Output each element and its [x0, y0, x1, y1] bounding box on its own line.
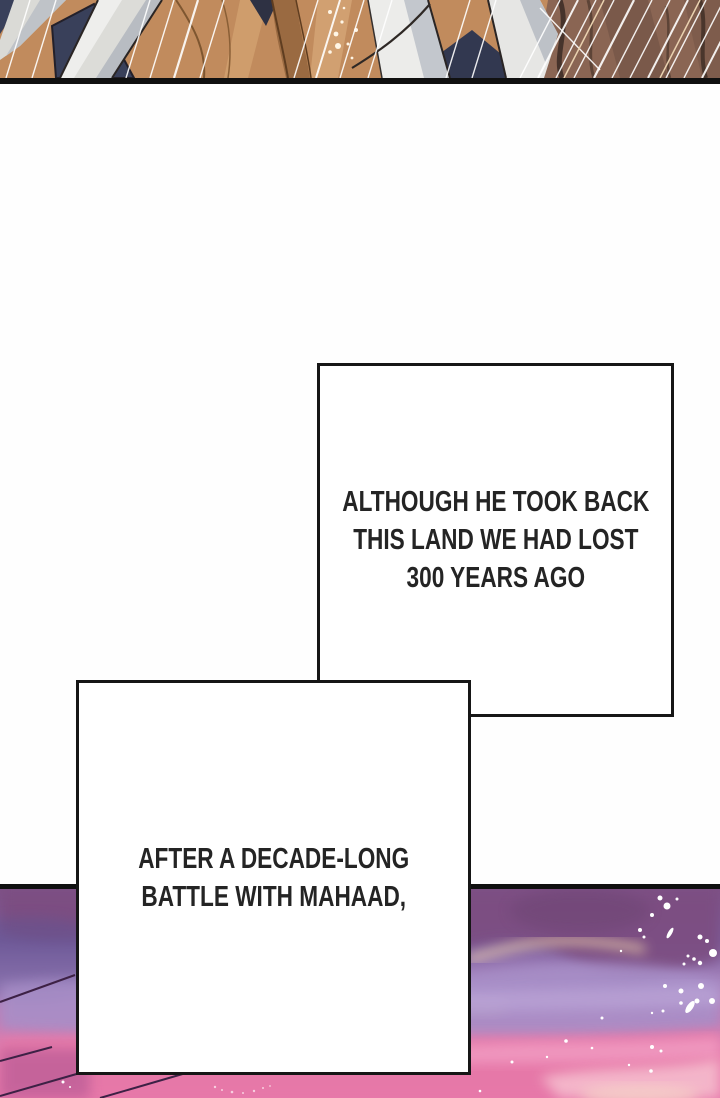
narration-text-1: ALTHOUGH HE TOOK BACK THIS LAND WE HAD L… [342, 483, 649, 597]
narration-box-2: AFTER A DECADE-LONG BATTLE WITH MAHAAD, [76, 680, 471, 1075]
top-panel [0, 0, 720, 84]
narration-box-1: ALTHOUGH HE TOOK BACK THIS LAND WE HAD L… [317, 363, 674, 717]
narration-text-2: AFTER A DECADE-LONG BATTLE WITH MAHAAD, [138, 840, 409, 916]
top-panel-art [0, 0, 720, 78]
narration-line: AFTER A DECADE-LONG [138, 840, 409, 878]
narration-line: BATTLE WITH MAHAAD, [138, 878, 409, 916]
narration-line: ALTHOUGH HE TOOK BACK [342, 483, 649, 521]
narration-line: 300 YEARS AGO [342, 559, 649, 597]
comic-page: ALTHOUGH HE TOOK BACK THIS LAND WE HAD L… [0, 0, 720, 1098]
narration-line: THIS LAND WE HAD LOST [342, 521, 649, 559]
